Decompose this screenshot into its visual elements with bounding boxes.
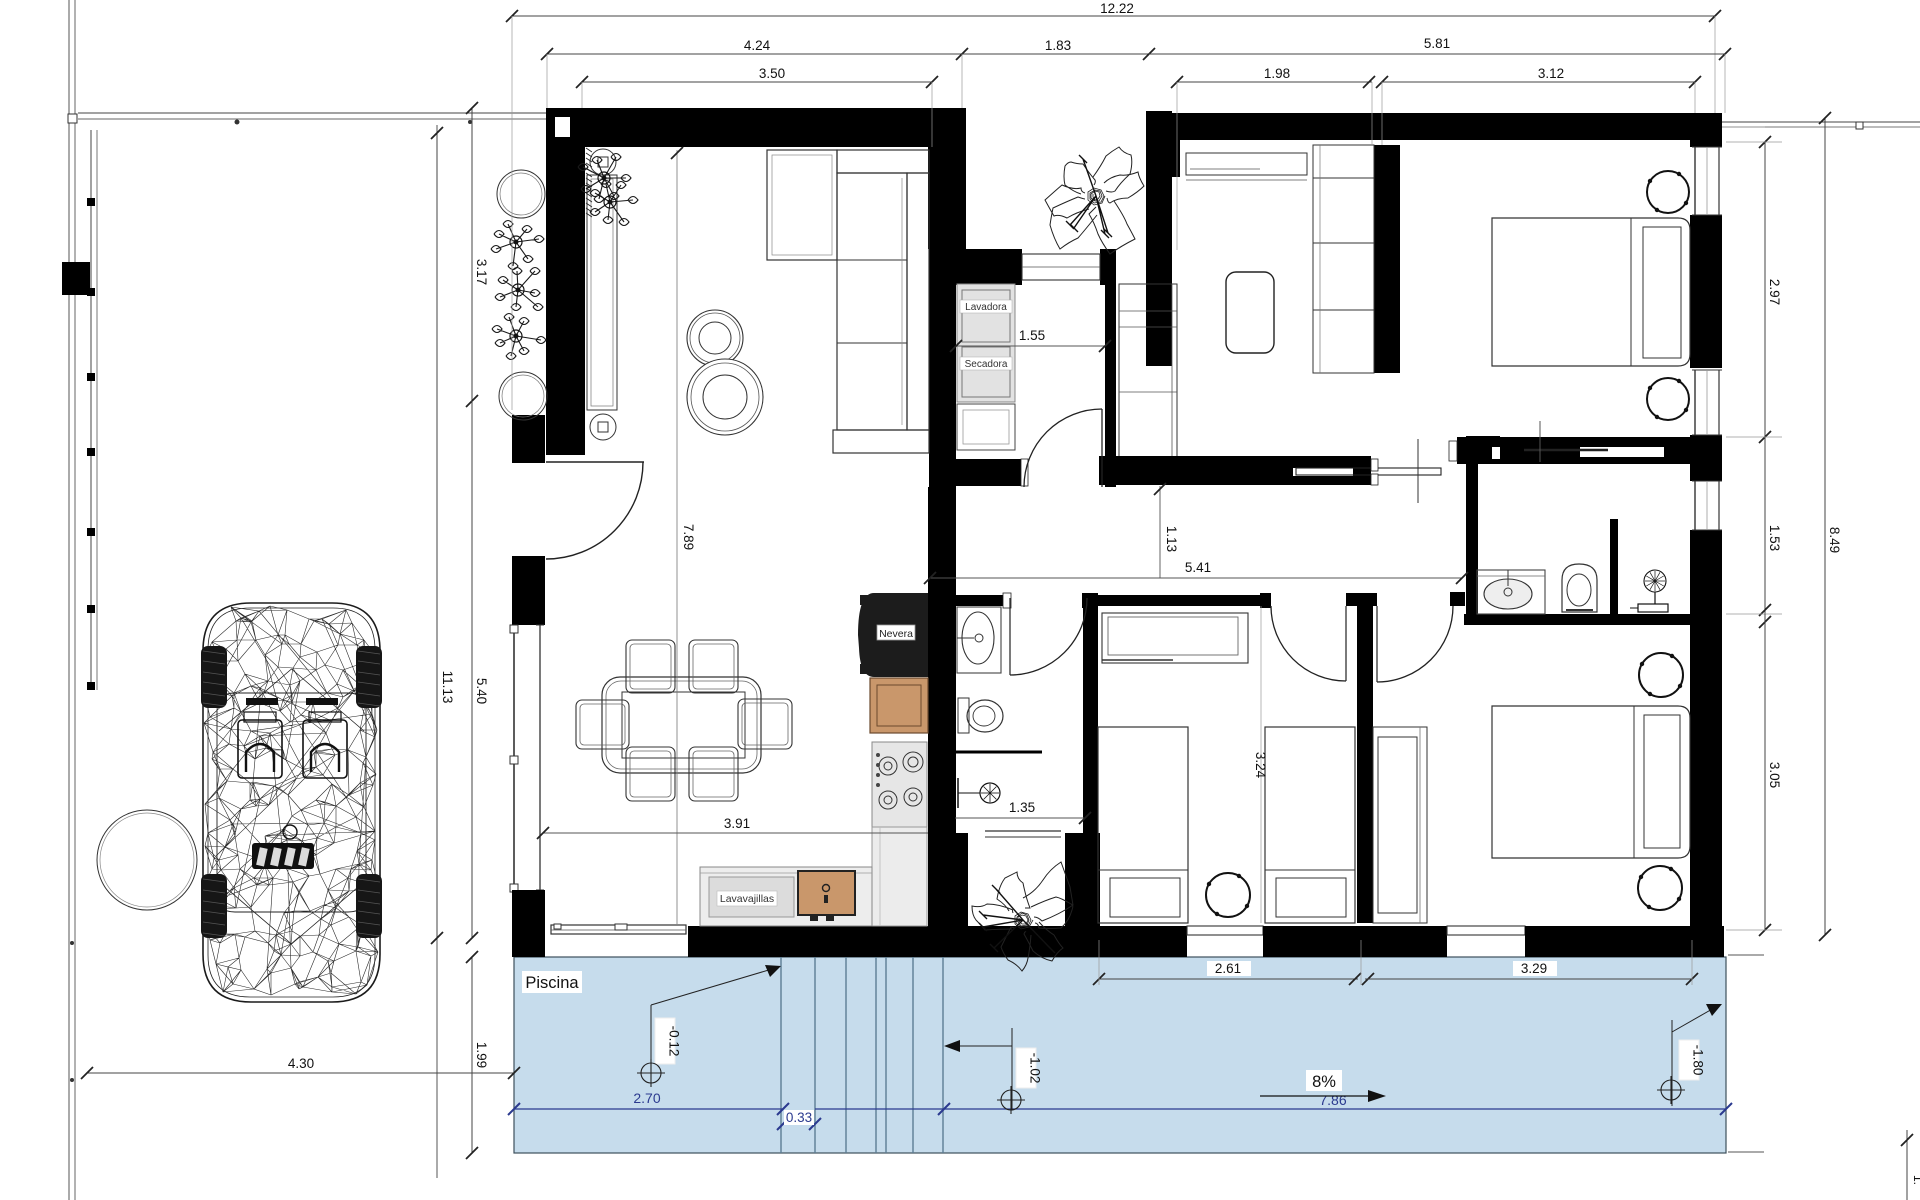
svg-text:7.86: 7.86: [1319, 1092, 1346, 1108]
svg-text:-1.02: -1.02: [1028, 1053, 1043, 1084]
svg-text:11.13: 11.13: [440, 671, 455, 704]
svg-text:1.53: 1.53: [1767, 525, 1782, 551]
svg-text:12.22: 12.22: [1100, 1, 1134, 16]
svg-text:3.12: 3.12: [1538, 66, 1564, 81]
svg-text:Piscina: Piscina: [525, 974, 579, 992]
svg-text:8.49: 8.49: [1827, 527, 1842, 553]
svg-text:7.89: 7.89: [681, 524, 696, 550]
svg-text:Lavadora: Lavadora: [965, 302, 1007, 313]
svg-text:0.33: 0.33: [786, 1110, 812, 1125]
svg-text:3.17: 3.17: [474, 259, 489, 285]
svg-text:4.24: 4.24: [744, 38, 771, 53]
svg-text:3.05: 3.05: [1767, 762, 1782, 788]
svg-text:3.24: 3.24: [1253, 752, 1268, 779]
svg-text:-0.12: -0.12: [667, 1026, 682, 1057]
svg-text:2.70: 2.70: [633, 1090, 660, 1106]
svg-text:1.99: 1.99: [474, 1042, 489, 1068]
svg-text:5.41: 5.41: [1185, 560, 1211, 575]
svg-text:1.55: 1.55: [1019, 328, 1045, 343]
svg-text:8%: 8%: [1312, 1073, 1336, 1091]
svg-text:-1.80: -1.80: [1691, 1045, 1706, 1076]
svg-text:Nevera: Nevera: [879, 628, 913, 640]
svg-text:Secadora: Secadora: [965, 359, 1008, 370]
svg-text:5.81: 5.81: [1424, 36, 1450, 51]
svg-text:3.50: 3.50: [759, 66, 785, 81]
svg-text:5.40: 5.40: [474, 678, 489, 704]
svg-text:3.29: 3.29: [1521, 961, 1547, 976]
svg-text:1.98: 1.98: [1264, 66, 1290, 81]
svg-text:2.97: 2.97: [1767, 279, 1782, 305]
svg-text:3.91: 3.91: [724, 816, 750, 831]
svg-text:1.83: 1.83: [1045, 38, 1071, 53]
svg-text:1.13: 1.13: [1164, 526, 1179, 552]
svg-text:4.30: 4.30: [288, 1056, 314, 1071]
svg-text:1.: 1.: [1911, 1175, 1920, 1185]
svg-text:2.61: 2.61: [1215, 961, 1241, 976]
svg-text:Lavavajillas: Lavavajillas: [720, 893, 774, 905]
svg-text:1.35: 1.35: [1009, 800, 1035, 815]
